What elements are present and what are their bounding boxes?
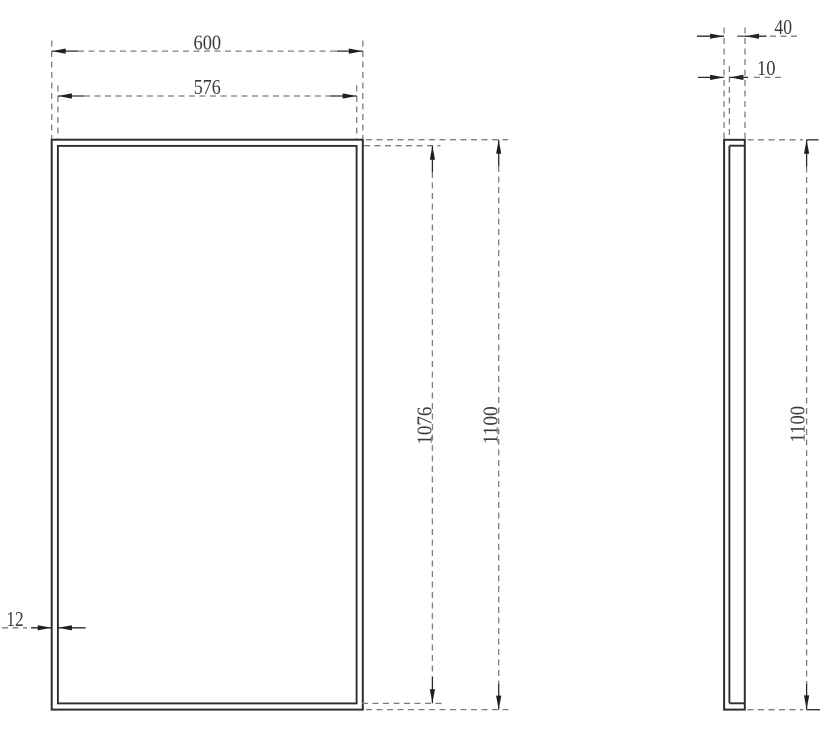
svg-text:1076: 1076 [413, 407, 437, 445]
svg-text:1100: 1100 [786, 406, 810, 443]
svg-text:40: 40 [774, 15, 792, 39]
svg-text:600: 600 [194, 31, 222, 55]
svg-text:1100: 1100 [479, 406, 503, 444]
svg-text:12: 12 [6, 607, 23, 631]
svg-text:10: 10 [757, 56, 776, 80]
svg-text:576: 576 [194, 75, 221, 99]
